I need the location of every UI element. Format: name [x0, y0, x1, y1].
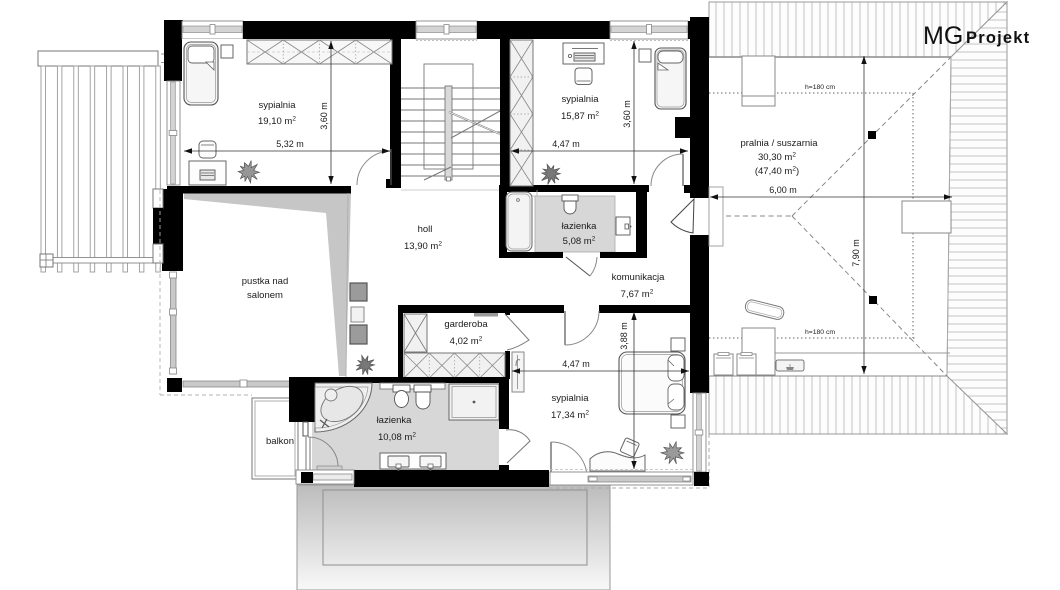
svg-text:sypialnia: sypialnia [552, 393, 590, 404]
svg-text:3,60 m: 3,60 m [622, 100, 632, 128]
svg-text:pralnia / suszarnia: pralnia / suszarnia [740, 138, 818, 149]
svg-text:5,32 m: 5,32 m [276, 139, 304, 149]
svg-text:sypialnia: sypialnia [562, 94, 600, 105]
svg-text:pustka nad: pustka nad [242, 276, 288, 287]
svg-text:19,10 m2: 19,10 m2 [258, 116, 296, 128]
svg-text:łazienka: łazienka [562, 221, 598, 232]
svg-text:5,08 m2: 5,08 m2 [563, 236, 596, 248]
svg-text:komunikacja: komunikacja [612, 272, 666, 283]
svg-text:7,67 m2: 7,67 m2 [621, 289, 654, 301]
svg-text:17,34 m2: 17,34 m2 [551, 410, 589, 422]
svg-text:sypialnia: sypialnia [259, 100, 297, 111]
svg-text:4,47 m: 4,47 m [552, 139, 580, 149]
svg-text:MG: MG [923, 22, 963, 50]
svg-text:salonem: salonem [247, 290, 283, 301]
svg-text:6,00 m: 6,00 m [769, 185, 797, 195]
svg-text:h=180 cm: h=180 cm [805, 84, 835, 91]
svg-text:10,08 m2: 10,08 m2 [378, 432, 416, 444]
svg-text:4,02 m2: 4,02 m2 [450, 336, 483, 348]
svg-text:3,88 m: 3,88 m [619, 322, 629, 350]
svg-text:7,90 m: 7,90 m [851, 239, 861, 267]
svg-text:holl: holl [418, 224, 433, 235]
svg-text:garderoba: garderoba [444, 319, 488, 330]
svg-text:łazienka: łazienka [377, 415, 413, 426]
svg-text:Projekt: Projekt [966, 29, 1030, 47]
svg-text:balkon: balkon [266, 436, 294, 447]
svg-text:30,30 m2: 30,30 m2 [758, 152, 796, 164]
svg-text:h=180 cm: h=180 cm [805, 329, 835, 336]
svg-text:4,47 m: 4,47 m [562, 359, 590, 369]
svg-text:15,87 m2: 15,87 m2 [561, 111, 599, 123]
svg-text:13,90 m2: 13,90 m2 [404, 241, 442, 253]
svg-text:3,60 m: 3,60 m [319, 102, 329, 130]
